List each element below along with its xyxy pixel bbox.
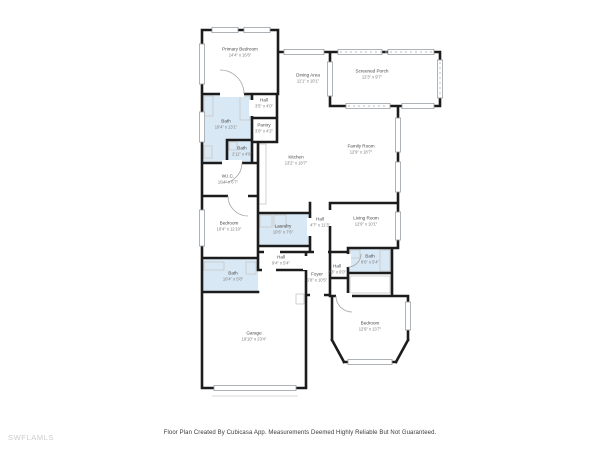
screen-hatch <box>340 52 440 106</box>
floor-plan-page: Primary Bedroom14'4" x 16'6" Dining Area… <box>0 0 600 450</box>
floor-plan-drawing <box>0 0 600 450</box>
walls <box>202 30 440 388</box>
footer-disclaimer: Floor Plan Created By Cubicasa App. Meas… <box>0 430 600 436</box>
window-symbols <box>199 27 442 390</box>
